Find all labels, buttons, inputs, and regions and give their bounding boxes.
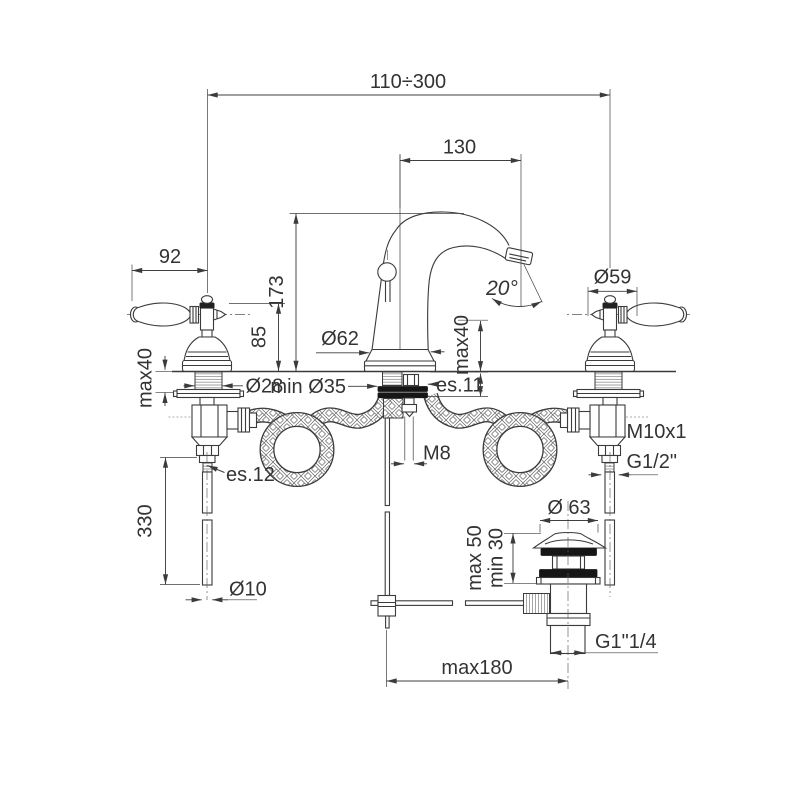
label-valve-thread: M10x1: [627, 421, 687, 443]
right-handle: [565, 296, 690, 372]
label-supply-hex: es.12: [226, 464, 275, 486]
dim-handle-height: 85: [249, 326, 271, 348]
base-gasket-lower: [378, 393, 428, 398]
label-hose-thread: G1/2": [627, 451, 677, 473]
popup-knob: [378, 263, 396, 281]
dim-lock-hex: es.11: [436, 375, 483, 397]
label-rod-thread: M8: [423, 443, 451, 465]
drawing-canvas: 110÷300 130 92 173 85 max40 Ø62 Ø28 mi: [0, 0, 800, 800]
label-waste-outlet-thread: G1"1/4: [595, 631, 657, 653]
popup-waste: [524, 533, 606, 654]
dim-supply-pipe-length: 330: [135, 504, 157, 537]
hose-stub: [384, 399, 404, 419]
popup-rod: [385, 418, 389, 506]
faucet-technical-drawing: 110÷300 130 92 173 85 max40 Ø62 Ø28 mi: [0, 0, 800, 800]
linkage-rod: [396, 601, 453, 606]
dim-waste-plug-dia: Ø 63: [547, 497, 590, 519]
spout: [365, 155, 533, 371]
dim-waste-deck-max: max 50: [464, 525, 486, 591]
spout-shank-assembly: [378, 372, 428, 418]
dim-spray-angle: 20°: [485, 277, 518, 300]
waste-gasket-upper: [541, 549, 597, 556]
dim-handle-length: 92: [159, 246, 181, 268]
rod-clamp: [378, 596, 396, 617]
linkage-rod: [466, 601, 527, 606]
aerator: [505, 247, 533, 265]
waste-collar: [547, 614, 590, 626]
dim-handle-base-dia: Ø59: [594, 267, 632, 289]
base-gasket-upper: [378, 387, 428, 392]
dim-handle-max-deck: max40: [135, 348, 157, 408]
dim-min-hole-dia: min Ø35: [270, 376, 346, 398]
dim-spout-base-dia: Ø62: [321, 328, 359, 350]
rod-knurl-nut: [524, 594, 550, 614]
dim-rod-offset-max: max180: [441, 657, 512, 679]
dim-total-reach: 110÷300: [370, 71, 446, 93]
popup-rod: [385, 512, 389, 596]
dim-spout-max-deck: max40: [451, 315, 473, 375]
dim-supply-pipe-dia: Ø10: [229, 579, 267, 601]
dim-waste-deck-min: min 30: [486, 528, 508, 588]
waste-body: [551, 584, 587, 614]
dim-spout-reach: 130: [443, 137, 476, 159]
